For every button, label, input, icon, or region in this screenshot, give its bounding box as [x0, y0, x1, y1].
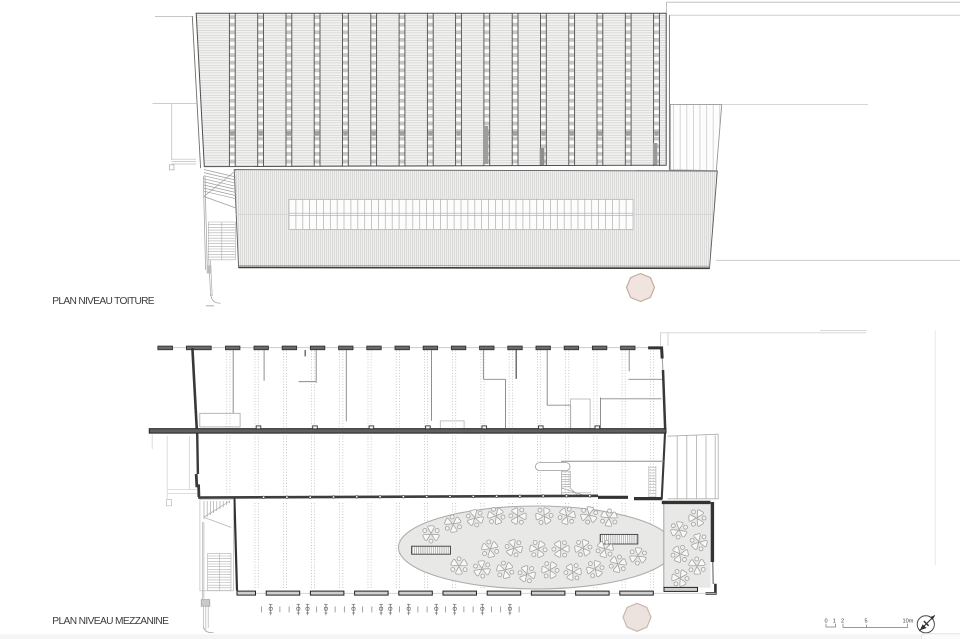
svg-text:PLAN NIVEAU TOITURE: PLAN NIVEAU TOITURE: [52, 296, 155, 307]
svg-text:1: 1: [833, 618, 836, 624]
svg-text:5: 5: [865, 618, 868, 624]
svg-text:2: 2: [841, 618, 844, 624]
svg-text:10m: 10m: [903, 618, 914, 624]
svg-text:0: 0: [825, 618, 828, 624]
svg-text:PLAN NIVEAU MEZZANINE: PLAN NIVEAU MEZZANINE: [52, 616, 169, 627]
